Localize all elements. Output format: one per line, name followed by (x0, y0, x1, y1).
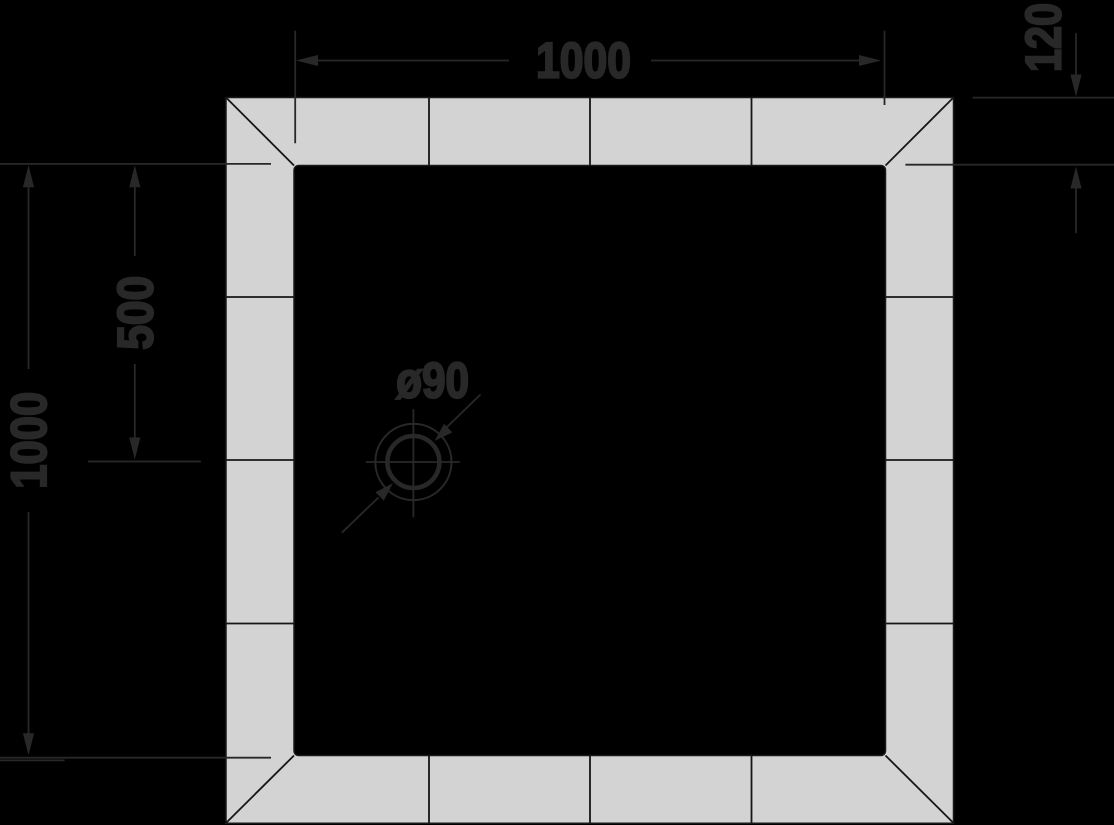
svg-text:1000: 1000 (1, 392, 57, 489)
svg-text:120: 120 (1016, 3, 1072, 72)
svg-text:ø90: ø90 (396, 353, 469, 409)
svg-text:1000: 1000 (536, 33, 631, 89)
svg-text:500: 500 (107, 276, 163, 350)
